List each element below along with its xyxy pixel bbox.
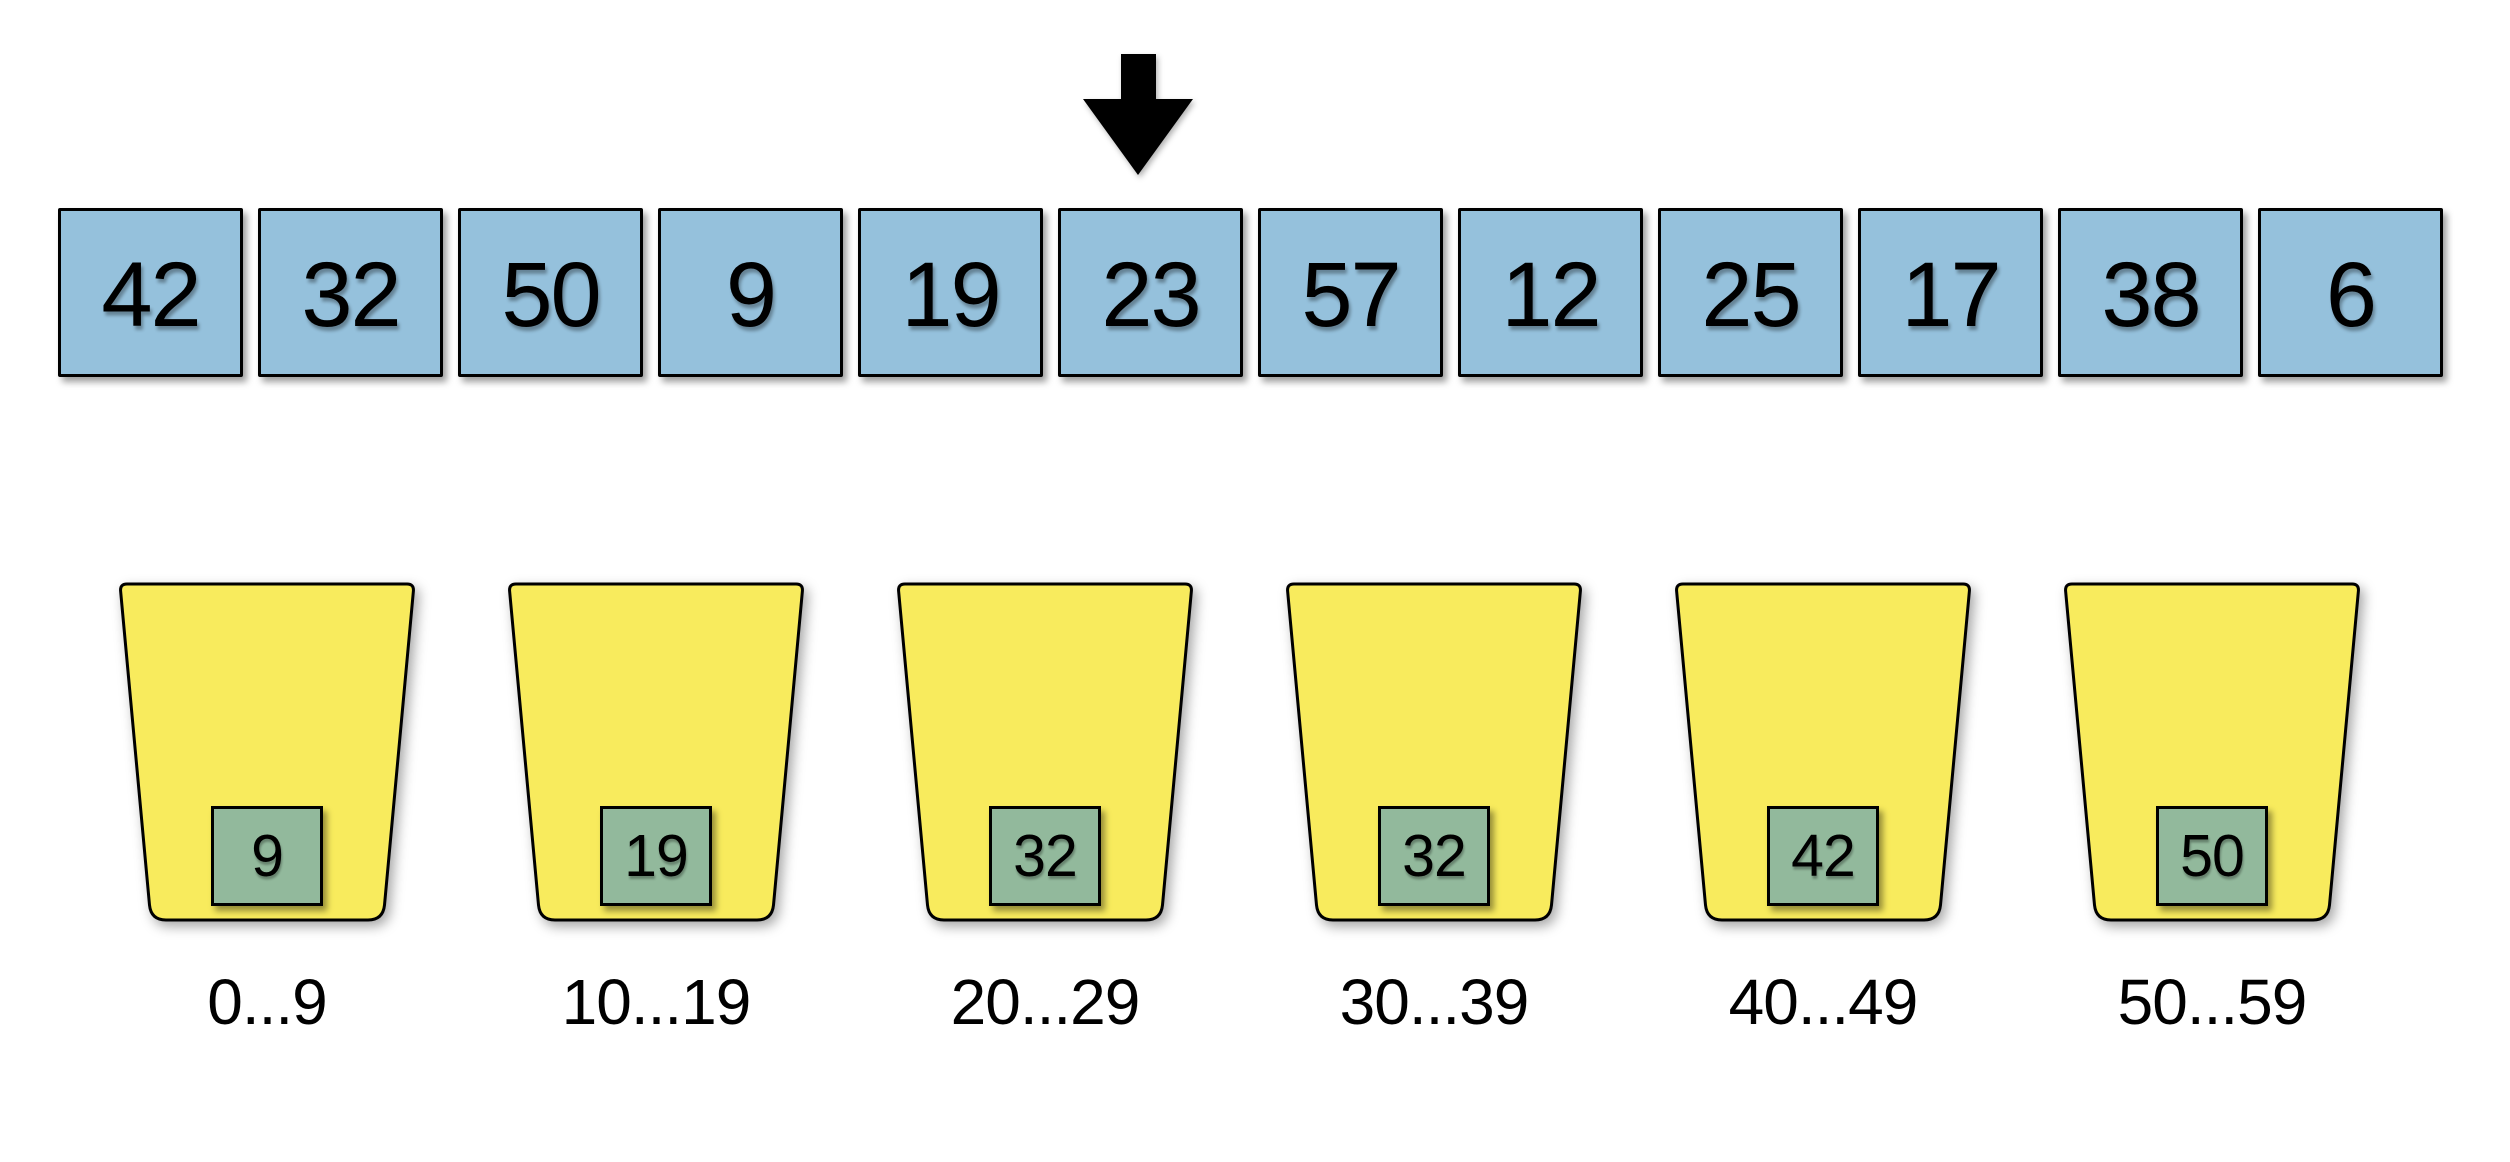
bucket-range-label: 30...39: [1284, 970, 1584, 1034]
bucket-range-label: 10...19: [506, 970, 806, 1034]
array-cell: 50: [458, 208, 643, 377]
bucket-30-39: 32 30...39: [1284, 582, 1584, 1042]
bucket-sort-diagram: 42 32 50 9 19 23 57 12 25 17 38 6 9 0...…: [0, 0, 2510, 1162]
bucket-item: 42: [1767, 806, 1879, 906]
array-cell-value: 42: [101, 249, 199, 341]
array-cell-value: 19: [901, 249, 999, 341]
array-cell: 17: [1858, 208, 2043, 377]
bucket-range-label: 0...9: [117, 970, 417, 1034]
array-cell-value: 25: [1701, 249, 1799, 341]
bucket-20-29: 32 20...29: [895, 582, 1195, 1042]
bucket-item-value: 9: [251, 827, 283, 886]
array-cell: 57: [1258, 208, 1443, 377]
bucket-item: 32: [989, 806, 1101, 906]
bucket-50-59: 50 50...59: [2062, 582, 2362, 1042]
down-arrow-icon: [1083, 54, 1193, 176]
array-cell: 6: [2258, 208, 2443, 377]
bucket-range-label: 40...49: [1673, 970, 1973, 1034]
array-cell: 12: [1458, 208, 1643, 377]
array-cell-value: 23: [1101, 249, 1199, 341]
array-cell-value: 12: [1501, 249, 1599, 341]
array-cell: 19: [858, 208, 1043, 377]
bucket-item: 32: [1378, 806, 1490, 906]
array-cell-value: 6: [2326, 249, 2375, 341]
array-cell-value: 9: [726, 249, 775, 341]
array-cell-value: 32: [301, 249, 399, 341]
bucket-item-value: 32: [1013, 827, 1077, 886]
input-array: 42 32 50 9 19 23 57 12 25 17 38 6: [58, 208, 2443, 377]
array-cell: 32: [258, 208, 443, 377]
bucket-item: 9: [211, 806, 323, 906]
bucket-range-label: 20...29: [895, 970, 1195, 1034]
array-cell-value: 38: [2101, 249, 2199, 341]
bucket-item-value: 42: [1791, 827, 1855, 886]
bucket-item: 19: [600, 806, 712, 906]
array-cell-current: 23: [1058, 208, 1243, 377]
array-cell-value: 57: [1301, 249, 1399, 341]
array-cell: 38: [2058, 208, 2243, 377]
array-cell: 25: [1658, 208, 1843, 377]
bucket-10-19: 19 10...19: [506, 582, 806, 1042]
array-cell-value: 17: [1901, 249, 1999, 341]
buckets-row: 9 0...9 19 10...19 32 20...29 32 30...39: [117, 582, 2362, 1042]
bucket-item: 50: [2156, 806, 2268, 906]
bucket-40-49: 42 40...49: [1673, 582, 1973, 1042]
array-cell-value: 50: [501, 249, 599, 341]
bucket-item-value: 32: [1402, 827, 1466, 886]
bucket-0-9: 9 0...9: [117, 582, 417, 1042]
array-cell: 9: [658, 208, 843, 377]
bucket-item-value: 19: [624, 827, 688, 886]
bucket-range-label: 50...59: [2062, 970, 2362, 1034]
bucket-item-value: 50: [2180, 827, 2244, 886]
array-cell: 42: [58, 208, 243, 377]
